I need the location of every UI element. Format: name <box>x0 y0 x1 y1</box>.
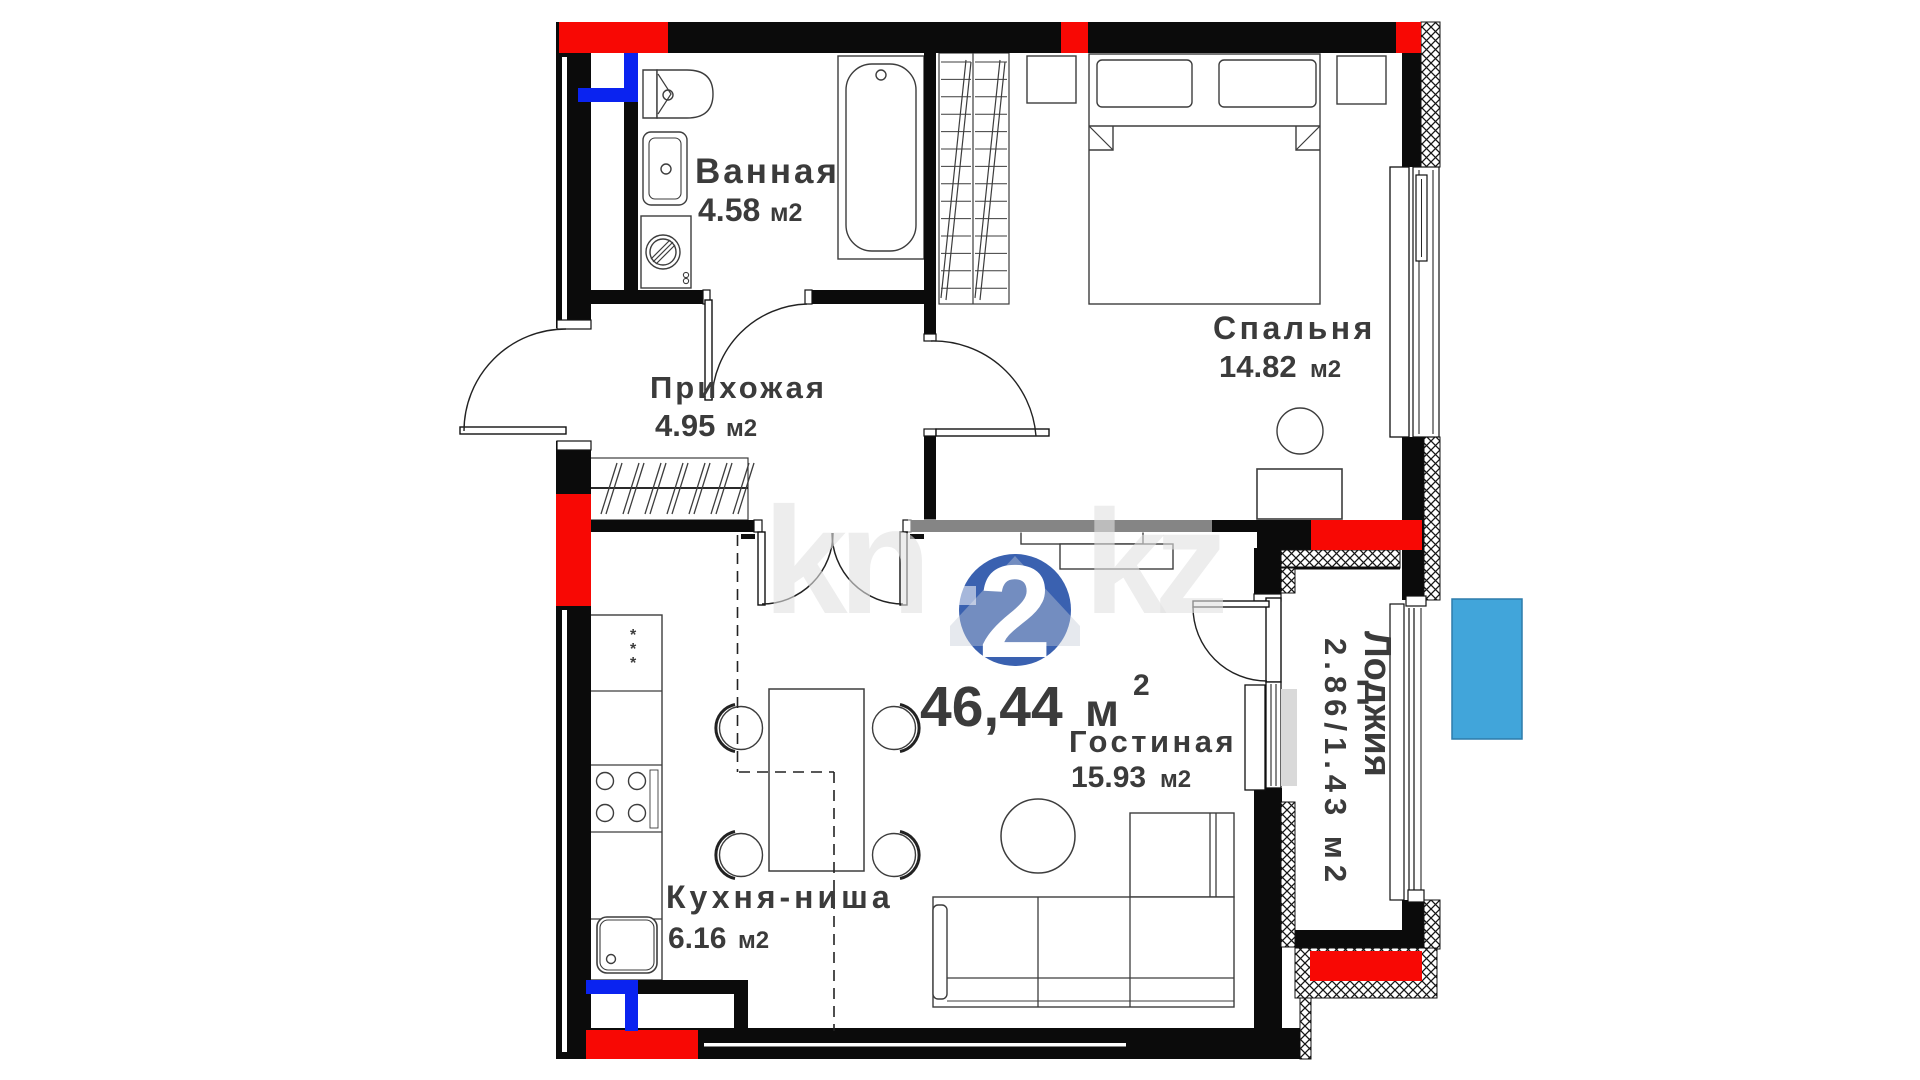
svg-text:kn: kn <box>763 476 923 646</box>
svg-text:Прихожая: Прихожая <box>650 370 827 405</box>
svg-text:м2: м2 <box>738 927 769 954</box>
svg-text:м2: м2 <box>1310 356 1341 383</box>
svg-text:14.82: 14.82 <box>1219 349 1297 384</box>
svg-text:2.86/1.43 м2: 2.86/1.43 м2 <box>1318 638 1353 888</box>
svg-text:*: * <box>630 655 637 672</box>
svg-text:Спальня: Спальня <box>1213 310 1376 346</box>
svg-text:15.93: 15.93 <box>1071 761 1146 794</box>
svg-text:4.95: 4.95 <box>655 408 715 443</box>
svg-text:Ванная: Ванная <box>695 152 840 191</box>
svg-text:2: 2 <box>978 538 1051 685</box>
svg-text:4.58: 4.58 <box>698 192 760 228</box>
svg-text:м2: м2 <box>726 415 757 442</box>
svg-text:Кухня-ниша: Кухня-ниша <box>666 879 894 915</box>
svg-text:2: 2 <box>1133 669 1150 702</box>
svg-text:Лоджия: Лоджия <box>1356 631 1398 777</box>
svg-text:м2: м2 <box>1160 766 1191 793</box>
svg-text:6.16: 6.16 <box>668 922 726 955</box>
svg-text:м: м <box>1085 684 1119 736</box>
svg-text:kz: kz <box>1084 480 1223 645</box>
svg-text:м2: м2 <box>770 199 802 227</box>
